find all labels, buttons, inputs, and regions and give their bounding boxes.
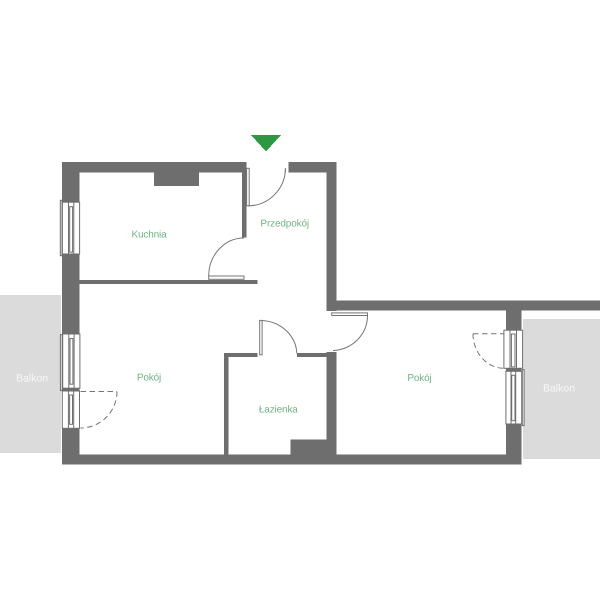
svg-text:Balkon: Balkon bbox=[16, 373, 48, 385]
svg-text:Balkon: Balkon bbox=[543, 383, 575, 395]
svg-text:Kuchnia: Kuchnia bbox=[131, 230, 167, 241]
svg-text:Pokój: Pokój bbox=[137, 373, 161, 384]
svg-text:Przedpokój: Przedpokój bbox=[260, 218, 309, 229]
svg-text:Pokój: Pokój bbox=[407, 373, 431, 384]
svg-text:Łazienka: Łazienka bbox=[259, 404, 298, 415]
